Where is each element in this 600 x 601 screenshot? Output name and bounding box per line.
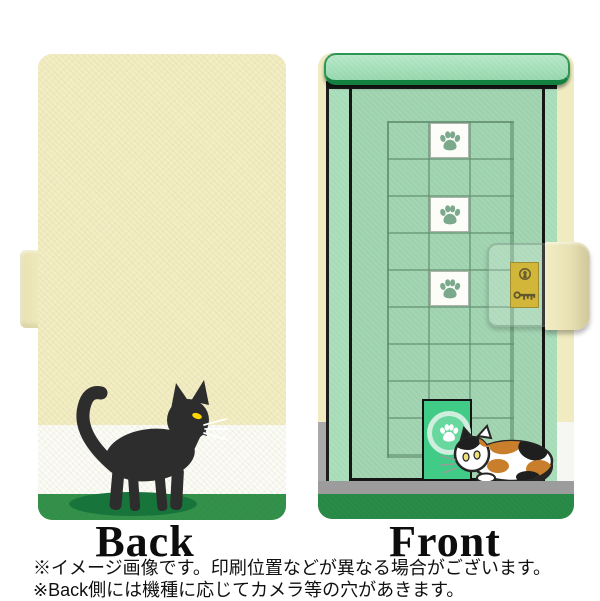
cat-ear	[478, 426, 491, 438]
cat-eye	[474, 451, 480, 459]
paw-icon	[438, 278, 462, 300]
case-front-panel	[318, 53, 574, 519]
disclaimer-notes: ※イメージ画像です。印刷位置などが異なる場合がございます。 ※Back側には機種…	[33, 558, 593, 601]
note-line-2: ※Back側には機種に応じてカメラ等の穴があきます。	[33, 580, 593, 601]
strap-clear-window	[487, 243, 553, 327]
paw-tile	[430, 123, 469, 158]
cat-ear	[191, 380, 209, 405]
black-cat-illustration	[55, 375, 230, 520]
paw-icon	[438, 204, 462, 226]
floor-strip	[318, 481, 574, 494]
paw-tile	[430, 197, 469, 232]
right-edge-band	[557, 422, 574, 481]
case-back-panel	[38, 54, 286, 520]
paw-tile	[430, 271, 469, 306]
cat-whiskers	[441, 456, 456, 473]
product-image: Back Front ※イメージ画像です。印刷位置などが異なる場合がございます。…	[0, 0, 600, 600]
magnetic-strap	[545, 242, 590, 330]
cat-body	[102, 380, 209, 511]
calico-cat-illustration	[440, 424, 555, 484]
paw-icon	[438, 130, 462, 152]
note-line-1: ※イメージ画像です。印刷位置などが異なる場合がございます。	[33, 558, 593, 580]
cat-eye	[463, 453, 469, 461]
case-top-bar	[324, 53, 570, 85]
